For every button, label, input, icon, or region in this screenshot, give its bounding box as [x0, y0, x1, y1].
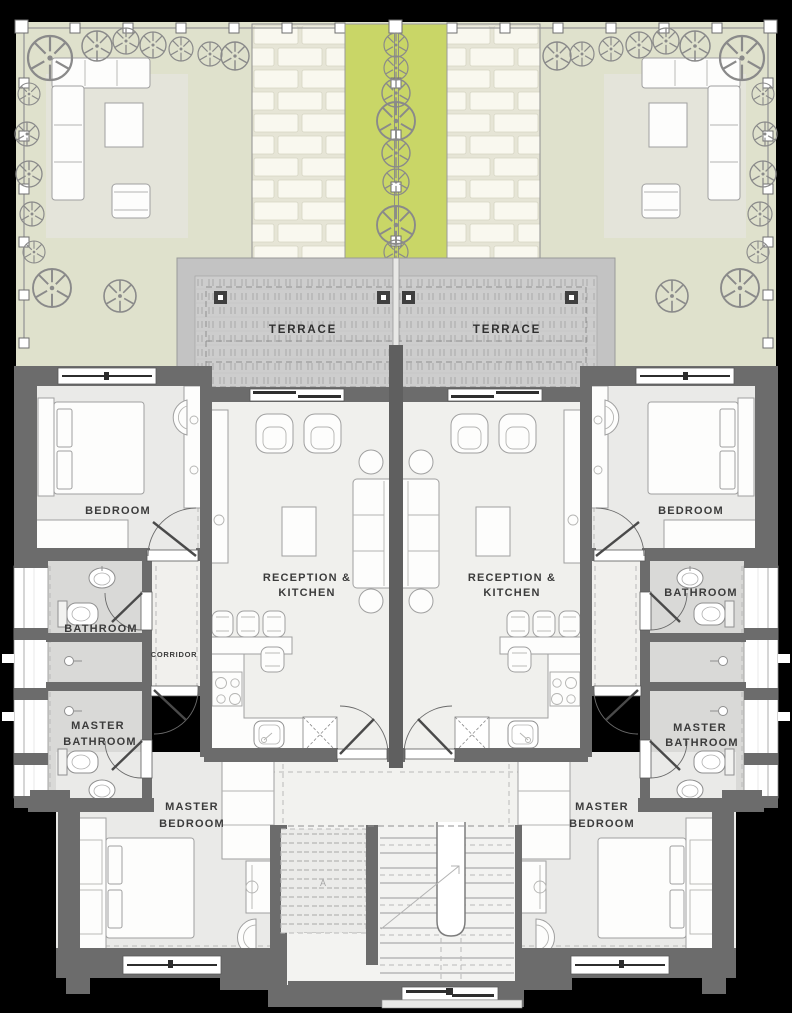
label-bathroom-right: BATHROOM: [664, 587, 738, 599]
party-wall: [389, 748, 403, 768]
pergola-post: [565, 291, 578, 304]
label-master-bedroom-right-line2: BEDROOM: [569, 818, 635, 830]
label-reception-right-line1: RECEPTION &: [468, 572, 556, 584]
pergola-post: [214, 291, 227, 304]
label-master-bathroom-left-line2: BATHROOM: [63, 736, 137, 748]
label-reception-left-line2: KITCHEN: [278, 587, 335, 599]
label-bedroom-right: BEDROOM: [658, 505, 724, 517]
floor-plan-drawing: TERRACE TERRACE BEDROOM BEDROOM RECEPTIO…: [0, 0, 792, 1013]
stair-wall: [366, 825, 378, 965]
label-master-bedroom-right-line1: MASTER: [575, 801, 629, 813]
pergola-post: [402, 291, 415, 304]
label-master-bedroom-left-line1: MASTER: [165, 801, 219, 813]
label-bedroom-left: BEDROOM: [85, 505, 151, 517]
entry-door: [402, 987, 498, 1000]
label-bathroom-left: BATHROOM: [64, 623, 138, 635]
label-stair-marker: A: [320, 878, 326, 888]
planted-strip: [345, 20, 447, 264]
label-corridor: CORRIDOR: [151, 650, 197, 659]
label-master-bathroom-right-line1: MASTER: [673, 722, 727, 734]
floor-plan-canvas: TERRACE TERRACE BEDROOM BEDROOM RECEPTIO…: [0, 0, 792, 1013]
label-master-bathroom-left-line1: MASTER: [71, 720, 125, 732]
stair-handrail: [437, 822, 465, 936]
party-wall: [389, 345, 403, 750]
label-reception-right-line2: KITCHEN: [483, 587, 540, 599]
label-terrace-left: TERRACE: [269, 324, 337, 336]
pergola-post: [377, 291, 390, 304]
entry-threshold: [382, 1000, 522, 1008]
terrace-divider: [393, 258, 399, 346]
label-master-bedroom-left-line2: BEDROOM: [159, 818, 225, 830]
label-terrace-right: TERRACE: [473, 324, 541, 336]
label-reception-left-line1: RECEPTION &: [263, 572, 351, 584]
label-master-bathroom-right-line2: BATHROOM: [665, 737, 739, 749]
